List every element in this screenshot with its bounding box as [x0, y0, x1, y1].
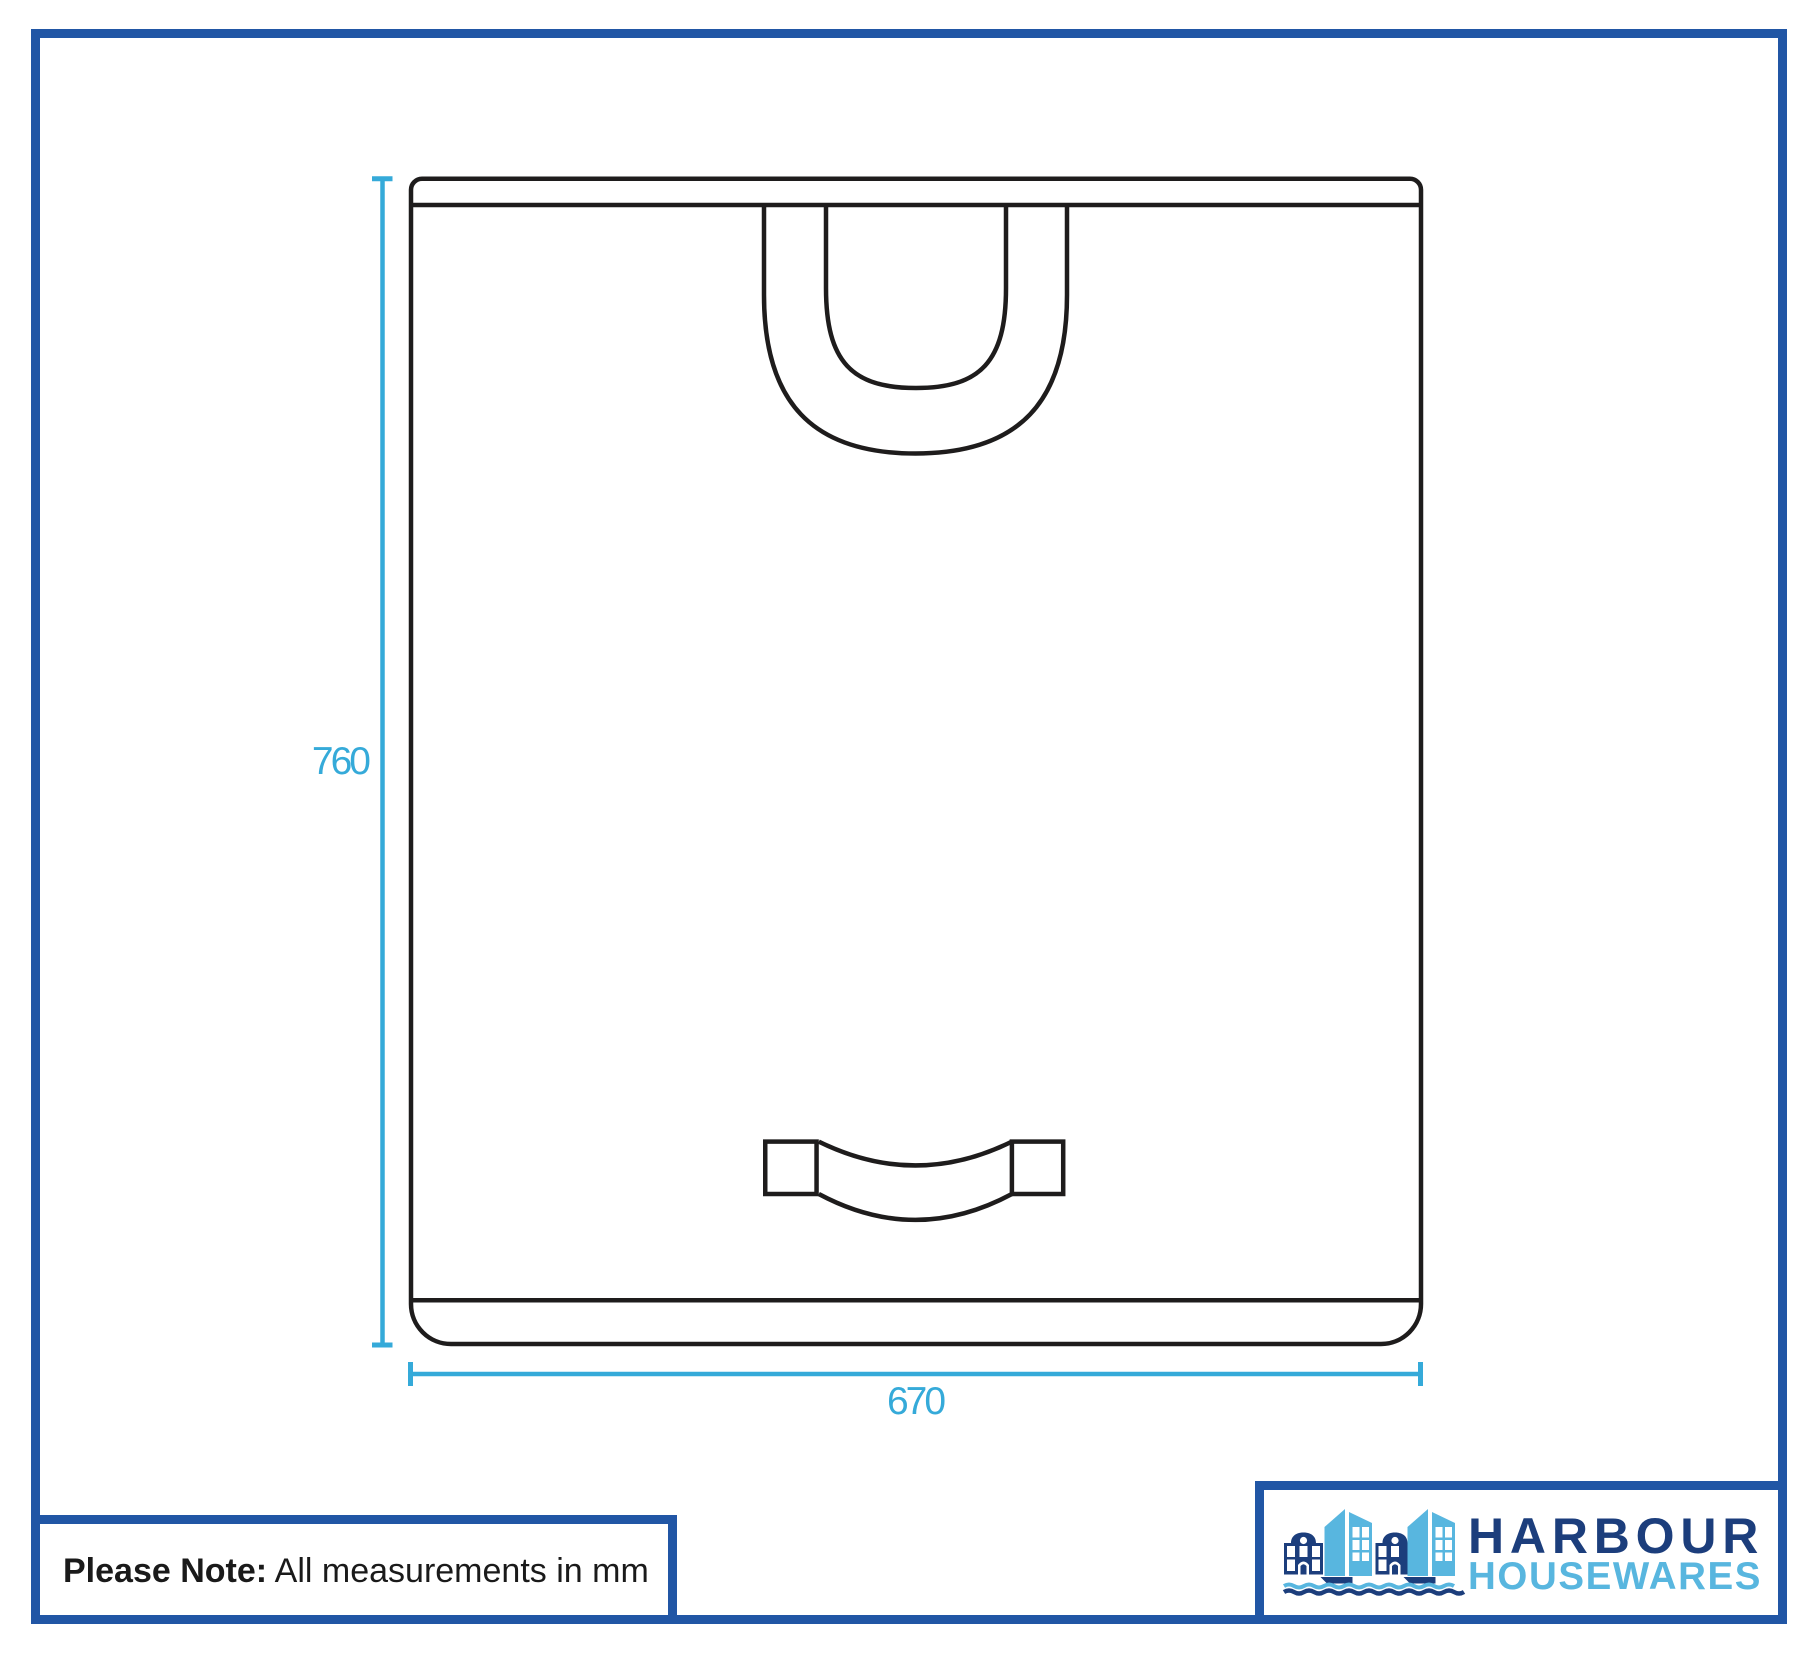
svg-text:670: 670	[887, 1380, 945, 1423]
svg-text:HOUSEWARES: HOUSEWARES	[1468, 1555, 1762, 1598]
svg-text:760: 760	[312, 740, 370, 783]
svg-text:Please Note: All measurements: Please Note: All measurements in mm	[63, 1552, 649, 1590]
